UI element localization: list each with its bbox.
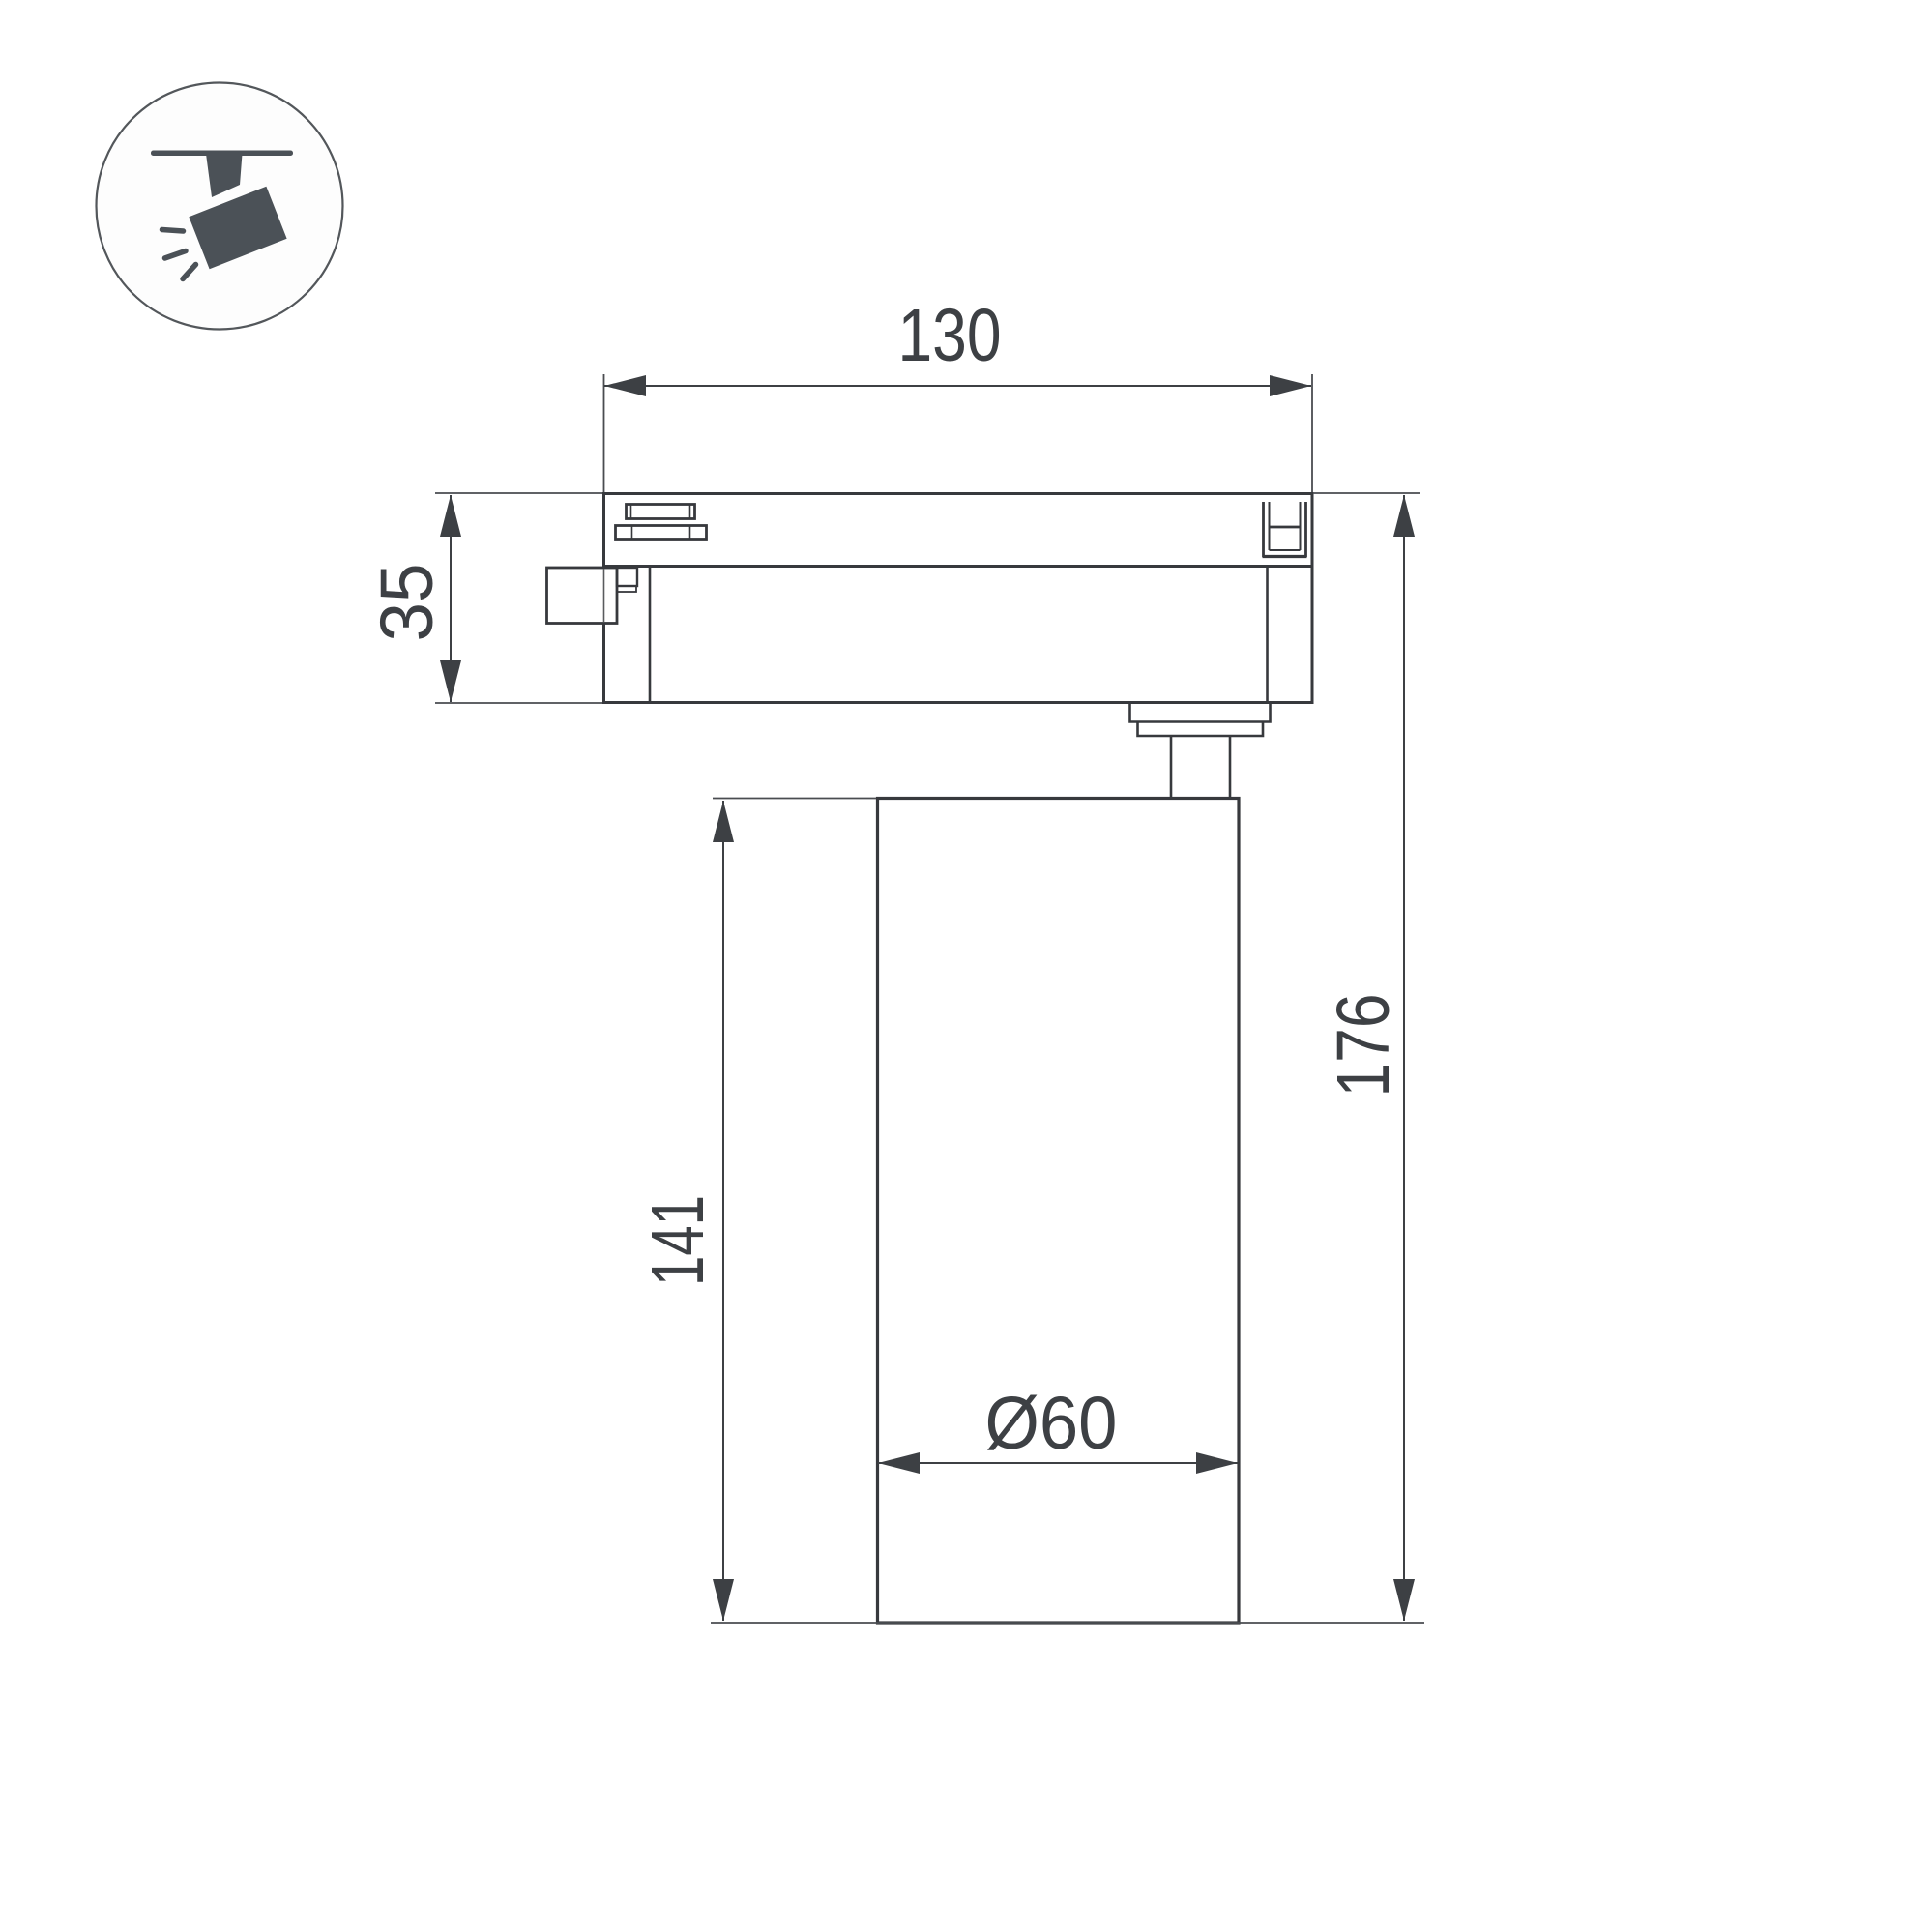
svg-text:130: 130 xyxy=(898,294,1002,377)
svg-text:Ø60: Ø60 xyxy=(985,1382,1118,1465)
svg-text:35: 35 xyxy=(366,564,449,642)
svg-text:141: 141 xyxy=(636,1195,719,1286)
svg-text:176: 176 xyxy=(1322,994,1405,1098)
